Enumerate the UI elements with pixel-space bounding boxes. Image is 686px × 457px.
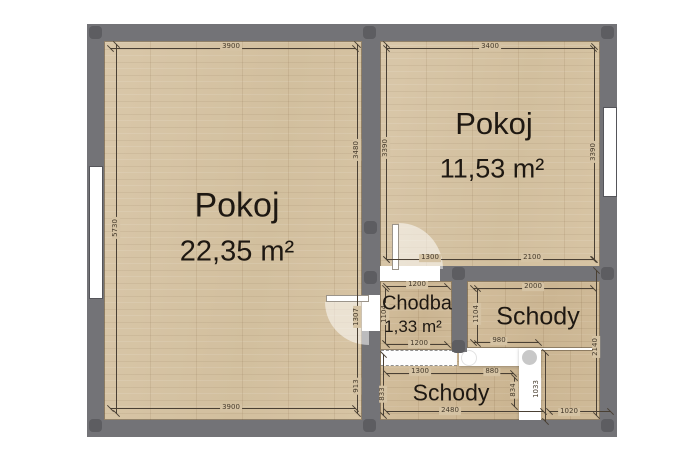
room-name-schody-right: Schody bbox=[496, 303, 579, 332]
dimension-label: 3900 bbox=[220, 404, 242, 412]
wall-post bbox=[452, 340, 465, 353]
wall-post bbox=[601, 267, 614, 280]
room-name-pokoj-left: Pokoj bbox=[194, 187, 279, 226]
dimension-label: 3390 bbox=[590, 141, 598, 163]
dimension-label: 5730 bbox=[112, 217, 120, 239]
stair-start-circle bbox=[461, 350, 477, 366]
room-name-pokoj-right: Pokoj bbox=[455, 106, 533, 142]
wall-post bbox=[601, 26, 614, 39]
dimension-label: 1300 bbox=[419, 254, 441, 262]
dimension-label: 1104 bbox=[473, 303, 481, 325]
dimension-label: 3480 bbox=[353, 139, 361, 161]
dimension-line bbox=[386, 259, 594, 260]
wall-bottom bbox=[87, 420, 617, 437]
floor-pokoj-left bbox=[104, 41, 362, 420]
dimension-line bbox=[357, 44, 358, 414]
room-name-chodba: Chodba bbox=[382, 293, 452, 316]
wall-top bbox=[87, 24, 617, 41]
wall-post bbox=[89, 26, 102, 39]
dimension-label: 2000 bbox=[522, 283, 544, 291]
dimension-label: 1033 bbox=[533, 378, 541, 400]
room-area-pokoj-left: 22,35 m² bbox=[180, 236, 294, 269]
wall-post bbox=[89, 419, 102, 432]
wall-middle-upper bbox=[362, 24, 380, 295]
dimension-label: 834 bbox=[510, 381, 518, 398]
floor-plan: 3900 5730 3480 1307 913 3900 3400 3390 3… bbox=[0, 0, 686, 457]
dimension-label: 2480 bbox=[439, 407, 461, 415]
door-leaf-right-room bbox=[392, 224, 399, 270]
wall-right bbox=[600, 24, 617, 437]
dimension-label: 913 bbox=[353, 377, 361, 394]
dimension-label: 2100 bbox=[521, 254, 543, 262]
dimension-label: 3390 bbox=[382, 137, 390, 159]
dimension-label: 880 bbox=[483, 368, 500, 376]
stair-corner-circle bbox=[522, 350, 537, 365]
dimension-label: 980 bbox=[490, 337, 507, 345]
window-right bbox=[603, 107, 617, 197]
dimension-label: 1200 bbox=[406, 281, 428, 289]
dimension-label: 3400 bbox=[479, 43, 501, 51]
dimension-label: 1300 bbox=[409, 368, 431, 376]
dimension-label: 1020 bbox=[558, 408, 580, 416]
wall-post bbox=[601, 419, 614, 432]
dimension-label: 2140 bbox=[592, 336, 600, 358]
room-name-schody-bottom: Schody bbox=[413, 380, 490, 407]
dimension-label: 3900 bbox=[220, 43, 242, 51]
room-area-pokoj-right: 11,53 m² bbox=[440, 154, 545, 185]
room-area-chodba: 1,33 m² bbox=[384, 317, 442, 337]
window-left bbox=[89, 166, 103, 299]
wall-post bbox=[452, 267, 465, 280]
wall-post bbox=[363, 419, 376, 432]
wall-post bbox=[364, 271, 377, 284]
dimension-label: 1307 bbox=[353, 306, 361, 328]
dimension-label: 833 bbox=[379, 385, 387, 402]
dimension-label: 1200 bbox=[408, 340, 430, 348]
wall-post bbox=[364, 221, 377, 234]
stair-void-dashed bbox=[381, 350, 457, 366]
door-leaf-left-room bbox=[326, 295, 369, 302]
dimension-line bbox=[386, 411, 544, 412]
wall-post bbox=[363, 26, 376, 39]
